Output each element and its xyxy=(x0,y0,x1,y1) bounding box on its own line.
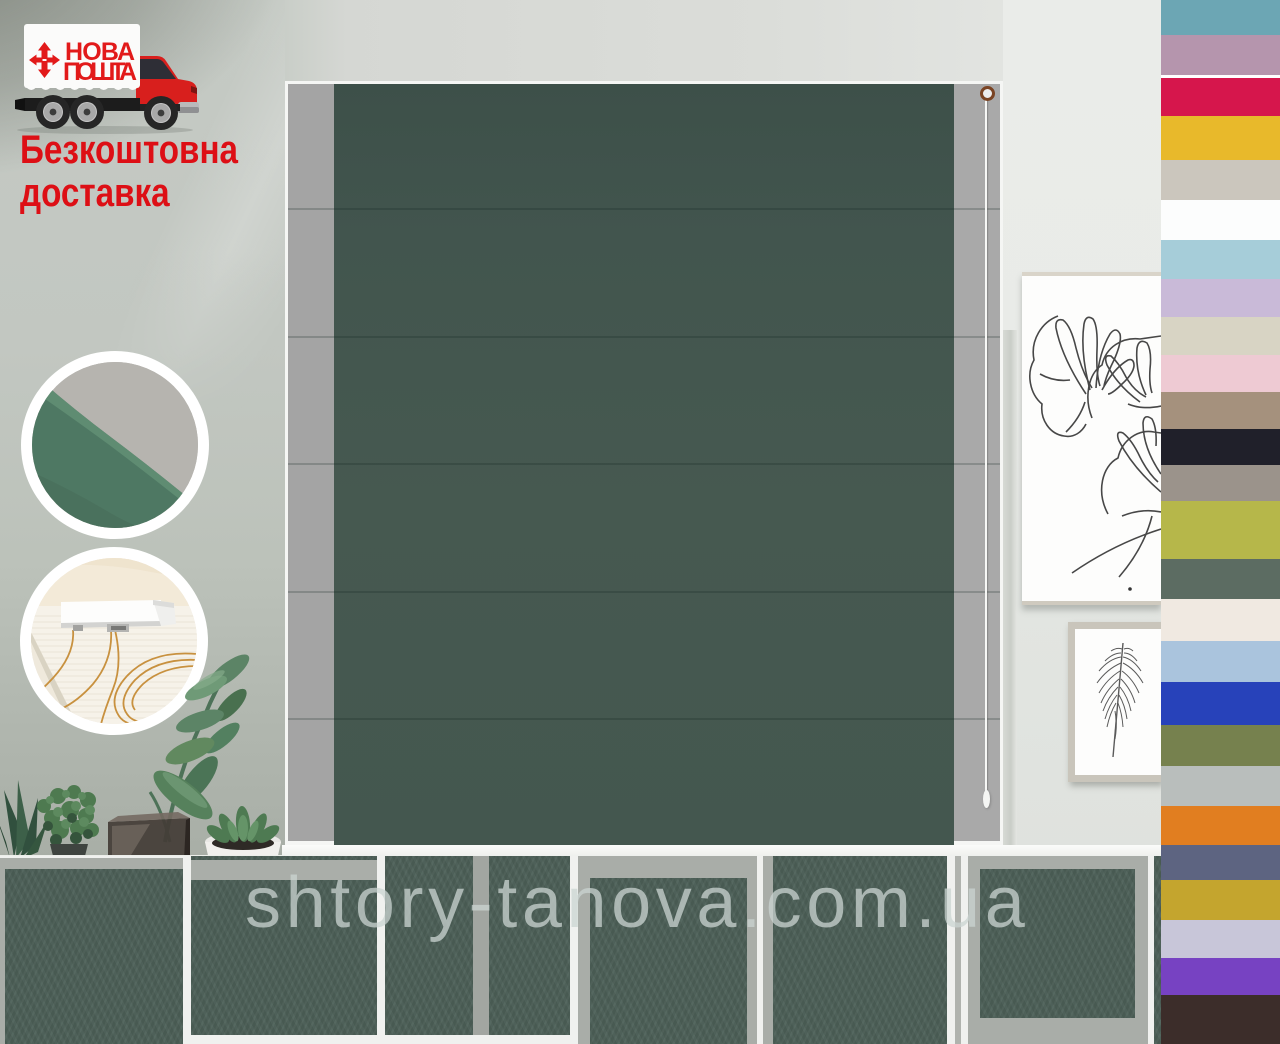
svg-text:ПОШТА: ПОШТА xyxy=(63,58,137,86)
